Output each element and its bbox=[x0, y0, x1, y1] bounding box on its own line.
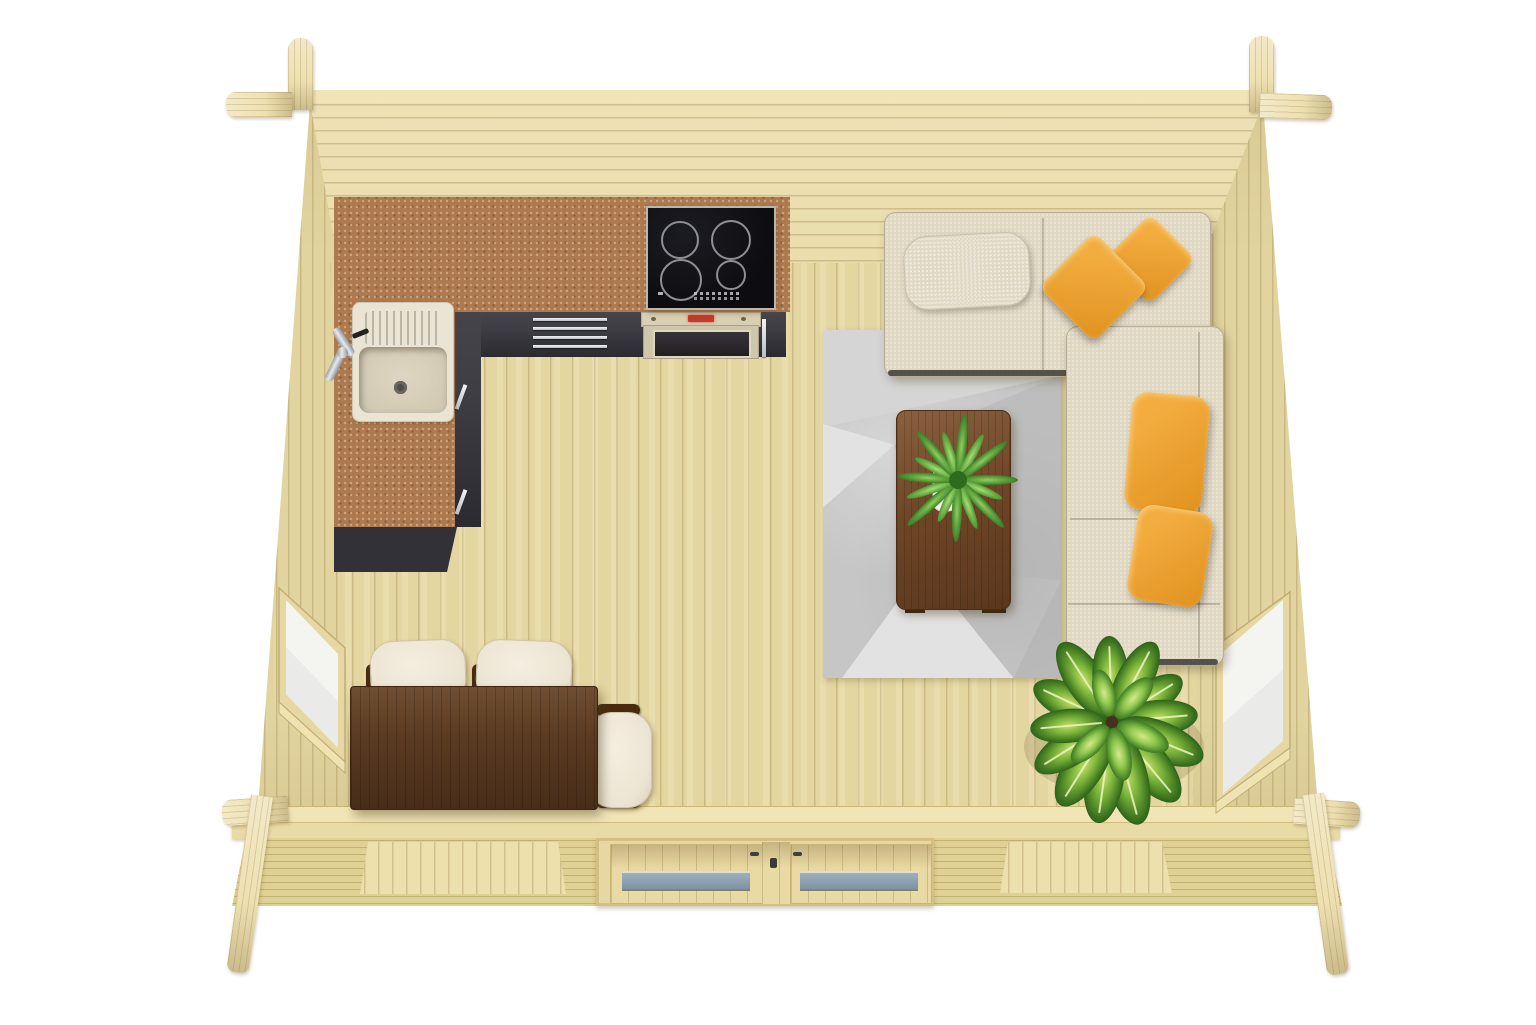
sink-drain bbox=[394, 381, 407, 394]
faucet-base bbox=[337, 347, 348, 358]
fern-plant bbox=[888, 408, 1028, 548]
oven-door-glass bbox=[653, 330, 751, 358]
oven-display bbox=[688, 315, 714, 322]
cooktop-zone-rear-right bbox=[716, 260, 746, 290]
sink-drainboard-ridges bbox=[365, 311, 441, 345]
sofa-cream-pillow bbox=[902, 231, 1032, 311]
yellow-bolster-lower bbox=[1125, 503, 1215, 610]
cooktop-zone-front-left bbox=[661, 221, 699, 259]
cabinet-handle-vertical bbox=[762, 319, 766, 357]
side-windows-layer bbox=[0, 0, 1536, 1025]
drawer-handle-3 bbox=[533, 336, 607, 339]
cooktop-controls-row2 bbox=[694, 297, 742, 300]
cooktop-zone-front-right bbox=[711, 220, 751, 260]
kitchen-cabinet-side-face bbox=[455, 312, 481, 527]
oven-knob-right bbox=[741, 317, 746, 321]
induction-cooktop bbox=[646, 206, 776, 310]
sofa-seat-seam bbox=[1042, 218, 1044, 370]
fern-center bbox=[949, 471, 967, 489]
plant-leaves bbox=[1026, 633, 1210, 830]
sink-basin bbox=[359, 347, 447, 413]
yellow-bolster-upper bbox=[1123, 391, 1211, 515]
oven bbox=[641, 312, 759, 358]
dieffenbachia-plant bbox=[992, 602, 1232, 842]
kitchen-sink bbox=[352, 302, 454, 422]
dining-table bbox=[350, 686, 598, 810]
cooktop-power-dot bbox=[658, 292, 663, 295]
drawer-handle-1 bbox=[533, 318, 607, 321]
drawer-handle-2 bbox=[533, 327, 607, 330]
drawer-handle-4 bbox=[533, 345, 607, 348]
cabin-top-view-render bbox=[0, 0, 1536, 1025]
oven-knob-left bbox=[651, 317, 656, 321]
cooktop-controls-row1 bbox=[694, 292, 742, 295]
